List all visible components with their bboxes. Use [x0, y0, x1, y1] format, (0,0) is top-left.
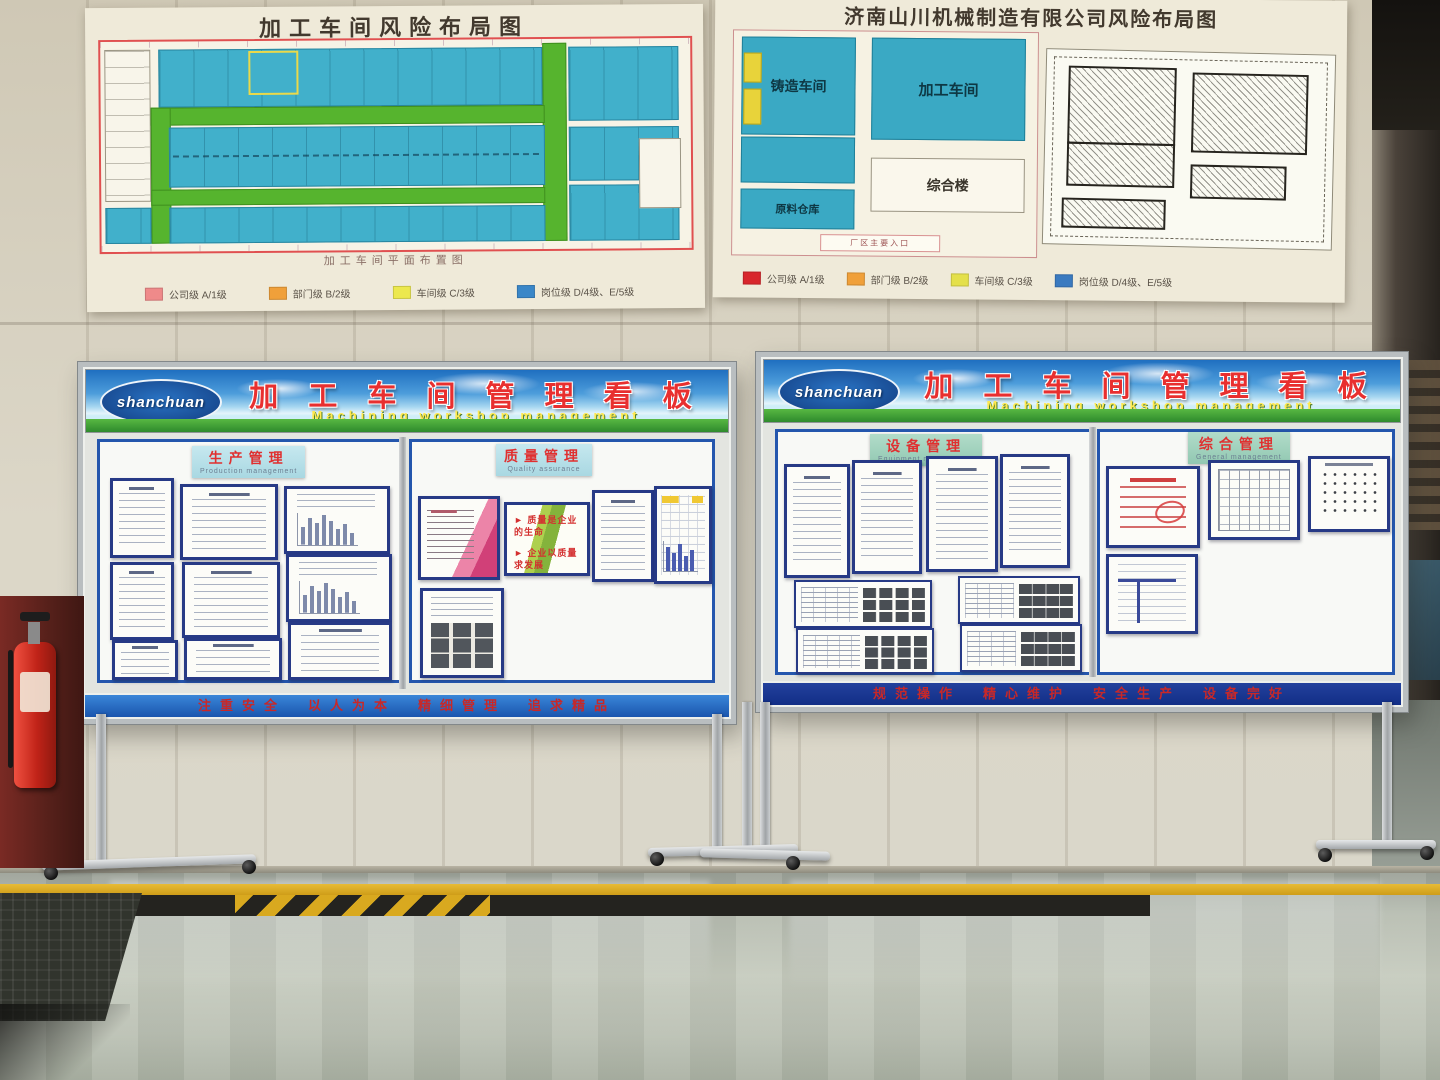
legend-label: 岗位级 D/4级、E/5级	[541, 283, 634, 299]
banner-label: 设备管理	[878, 436, 974, 456]
section-banner-quality: 质量管理 Quality assurance	[496, 444, 592, 476]
panel-quality: 质量管理 Quality assurance ► 质量是企业的生命► 企业以质量…	[409, 439, 715, 683]
map-aisle-horizontal	[151, 105, 545, 126]
document-lines	[1000, 454, 1070, 568]
poster-caption: 加工车间平面布置图	[87, 250, 705, 270]
document-phototable	[794, 580, 932, 628]
legend-item: 公司级 A/1级	[145, 286, 227, 302]
extinguisher-label	[20, 672, 50, 712]
legend-item: 岗位级 D/4级、E/5级	[1055, 273, 1172, 289]
map-aisle-horizontal	[151, 187, 545, 206]
legend-item: 岗位级 D/4级、E/5级	[517, 283, 634, 299]
document-lines	[288, 622, 392, 680]
map-machine-block	[105, 208, 151, 244]
legend-label: 公司级 A/1级	[767, 271, 825, 287]
risk-legend: 公司级 A/1级 部门级 B/2级 车间级 C/3级 岗位级 D/4级、E/5级	[743, 270, 1172, 289]
caster-wheel	[650, 852, 664, 866]
block-annex	[741, 136, 855, 183]
banner-sublabel: Quality assurance	[504, 466, 584, 473]
stand-leg	[96, 714, 106, 864]
shanchuan-logo: shanchuan	[778, 369, 900, 415]
site-building	[1066, 142, 1175, 188]
risk-layout-poster-left: 加工车间风险布局图 加工车间平面布置图 公司级 A/1级 部门级 B/2级 车间…	[85, 4, 705, 312]
map-aisle-vertical	[542, 43, 567, 241]
legend-swatch	[743, 271, 761, 284]
board-header: shanchuan 加 工 车 间 管 理 看 板 Machining work…	[763, 359, 1401, 423]
panel-divider	[399, 437, 406, 689]
legend-swatch	[145, 288, 163, 301]
quality-slogan-line: ► 质量是企业的生命	[514, 515, 583, 538]
floor-yellow-line	[0, 884, 1440, 895]
stand-leg	[760, 702, 770, 852]
stand-leg	[1382, 702, 1392, 844]
corner-shadow	[0, 1004, 130, 1080]
document-diagram	[1106, 554, 1198, 634]
panel-general: 综合管理 General management	[1097, 429, 1395, 675]
document-lines	[180, 484, 278, 560]
block-entrance-label: 厂区主要入口	[820, 234, 940, 252]
legend-label: 车间级 C/3级	[416, 284, 474, 299]
map-highlight-block	[248, 51, 298, 95]
document-pink	[418, 496, 500, 580]
legend-label: 车间级 C/3级	[974, 273, 1032, 289]
floor-black-band	[0, 895, 1150, 916]
panel-production: 生产管理 Production management	[97, 439, 403, 683]
legend-item: 公司级 A/1级	[743, 270, 825, 286]
panel-equipment: 设备管理 Equipment management	[775, 429, 1093, 675]
section-banner-production: 生产管理 Production management	[192, 446, 305, 478]
block-warehouse: 原料仓库	[740, 188, 854, 229]
board-footer-slogan: 注重安全 以人为本 精细管理 追求精品	[85, 695, 729, 717]
stand-leg	[712, 714, 722, 852]
caster-wheel	[786, 856, 800, 870]
block-yellow-tab	[743, 88, 761, 124]
map-cell-column	[104, 50, 151, 202]
risk-legend: 公司级 A/1级 部门级 B/2级 车间级 C/3级 岗位级 D/4级、E/5级	[145, 283, 634, 301]
map-machine-block	[568, 46, 679, 121]
panel-divider	[1089, 427, 1096, 677]
extinguisher-neck	[28, 622, 40, 644]
poster-title: 济南山川机械制造有限公司风险布局图	[715, 0, 1347, 34]
document-lines	[926, 456, 998, 572]
banner-label: 综合管理	[1196, 434, 1282, 454]
site-building	[1067, 66, 1177, 146]
document-phototable	[960, 624, 1082, 672]
board-footer-slogan: 规范操作 精心维护 安全生产 设备完好	[763, 683, 1401, 705]
banner-label: 生产管理	[200, 448, 297, 468]
caster-wheel	[1318, 848, 1332, 862]
legend-swatch	[950, 273, 968, 286]
document-slogan: ► 质量是企业的生命► 企业以质量求发展	[504, 502, 590, 576]
block-office-building: 综合楼	[870, 158, 1024, 213]
document-chart	[286, 554, 392, 622]
document-lines	[184, 638, 282, 680]
board-subtitle: Machining workshop management	[232, 408, 720, 423]
kanban-board-left: shanchuan 加 工 车 间 管 理 看 板 Machining work…	[78, 362, 736, 724]
block-yellow-tab	[744, 52, 762, 82]
document-ytable	[654, 486, 712, 584]
legend-swatch	[847, 272, 865, 285]
legend-label: 岗位级 D/4级、E/5级	[1079, 273, 1172, 289]
document-lines	[852, 460, 922, 574]
document-lines	[182, 562, 280, 638]
board-body: 生产管理 Production management 质量管理 Quality …	[85, 433, 729, 693]
legend-item: 车间级 C/3级	[392, 284, 474, 300]
workshop-photo: 加工车间风险布局图 加工车间平面布置图 公司级 A/1级 部门级 B/2级 车间…	[0, 0, 1440, 1080]
document-cert	[1106, 466, 1200, 548]
stand-foot	[1316, 840, 1436, 849]
document-lines	[592, 490, 654, 582]
map-machine-row	[158, 47, 542, 108]
site-building	[1061, 198, 1166, 230]
legend-swatch	[392, 286, 410, 299]
legend-item: 部门级 B/2级	[269, 285, 351, 301]
wall-floor-seam	[0, 866, 1440, 873]
document-phototable	[796, 628, 934, 674]
caster-wheel	[1420, 846, 1434, 860]
document-photos	[420, 588, 504, 678]
document-phototable	[958, 576, 1080, 624]
document-grid	[1208, 460, 1300, 540]
site-plan-drawing	[1042, 48, 1336, 251]
document-dots	[1308, 456, 1390, 532]
map-office-box	[639, 138, 681, 208]
quality-slogan-line: ► 企业以质量求发展	[514, 548, 583, 571]
block-machining-workshop: 加工车间	[871, 38, 1026, 141]
board-subtitle: Machining workshop management	[910, 398, 1392, 413]
legend-item: 车间级 C/3级	[950, 272, 1032, 288]
banner-sublabel: Production management	[200, 468, 297, 475]
hazard-stripes	[235, 895, 490, 916]
document-chart	[284, 486, 390, 554]
map-machine-row	[169, 205, 545, 244]
document-lines	[110, 562, 174, 640]
wall-panel-joint	[0, 322, 1376, 325]
fire-extinguisher	[14, 642, 56, 788]
site-building	[1191, 72, 1309, 155]
logo-text: shanchuan	[795, 384, 883, 401]
stand-leg	[742, 702, 752, 854]
legend-item: 部门级 B/2级	[847, 271, 929, 287]
legend-label: 部门级 B/2级	[293, 285, 351, 300]
extinguisher-hose	[8, 650, 13, 768]
shanchuan-logo: shanchuan	[100, 379, 222, 425]
kanban-board-right: shanchuan 加 工 车 间 管 理 看 板 Machining work…	[756, 352, 1408, 712]
board-header: shanchuan 加 工 车 间 管 理 看 板 Machining work…	[85, 369, 729, 433]
site-building	[1190, 164, 1287, 200]
caster-wheel	[242, 860, 256, 874]
legend-swatch	[517, 285, 535, 298]
extinguisher-handle	[20, 612, 50, 621]
caster-wheel	[44, 866, 58, 880]
logo-text: shanchuan	[117, 394, 205, 411]
banner-label: 质量管理	[504, 446, 584, 466]
legend-swatch	[1055, 274, 1073, 287]
document-lines	[784, 464, 850, 578]
machinery-dark-top	[1372, 0, 1440, 130]
legend-label: 公司级 A/1级	[169, 286, 227, 301]
board-body: 设备管理 Equipment management 综合管理 General m…	[763, 423, 1401, 681]
company-block-map: 铸造车间 原料仓库 加工车间 综合楼 厂区主要入口	[731, 29, 1039, 258]
legend-label: 部门级 B/2级	[871, 272, 929, 288]
legend-swatch	[269, 287, 287, 300]
document-lines	[112, 640, 178, 680]
document-lines	[110, 478, 174, 558]
risk-layout-poster-right: 济南山川机械制造有限公司风险布局图 铸造车间 原料仓库 加工车间 综合楼 厂区主…	[713, 0, 1348, 303]
floor-plan-map	[98, 36, 693, 254]
